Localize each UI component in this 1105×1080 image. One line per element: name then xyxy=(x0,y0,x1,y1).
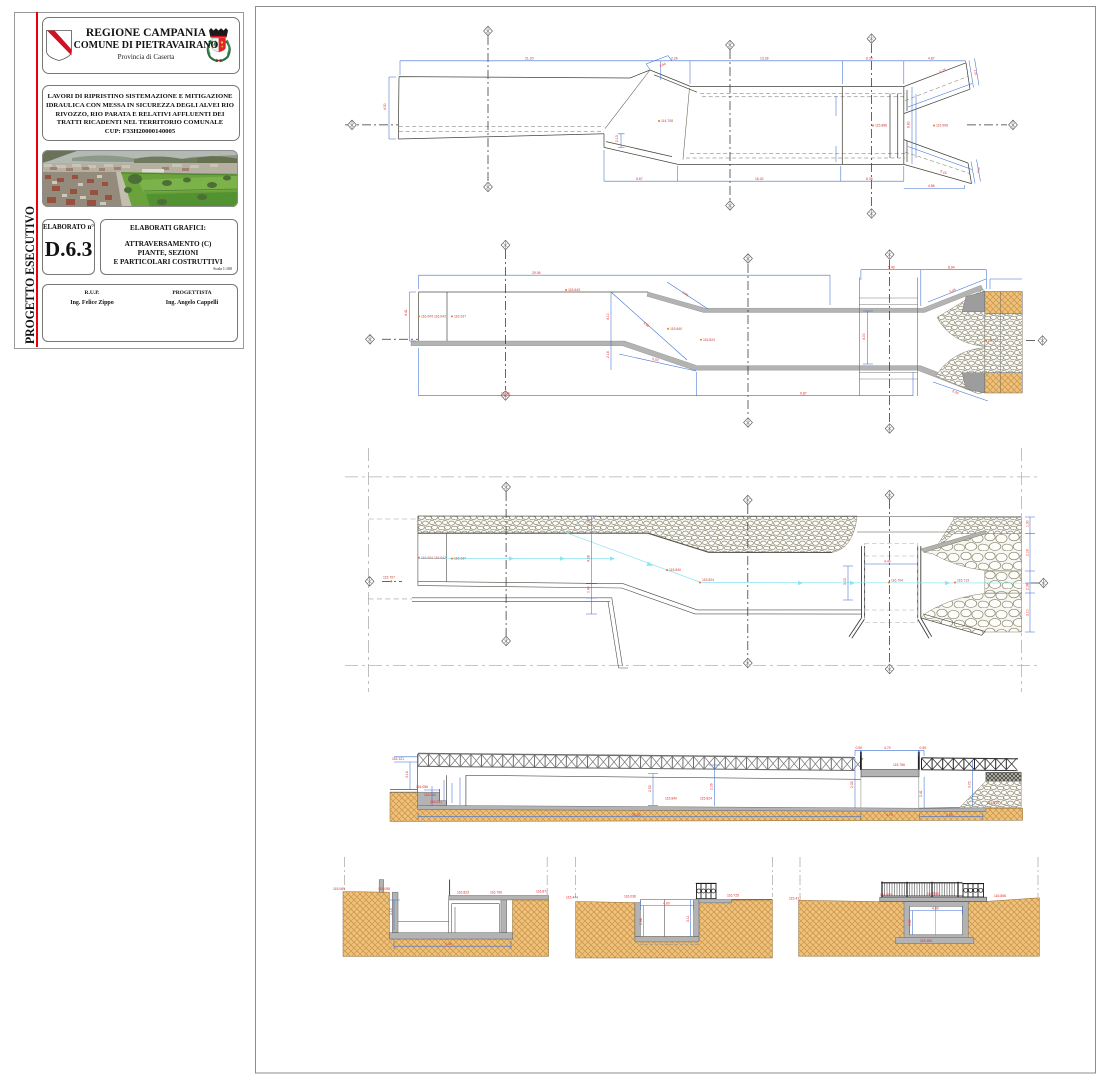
svg-text:4.80: 4.80 xyxy=(932,907,939,911)
svg-text:25.02: 25.02 xyxy=(632,813,641,817)
svg-text:3.01: 3.01 xyxy=(681,290,689,297)
svg-text:4.87: 4.87 xyxy=(928,57,935,61)
svg-text:116.056: 116.056 xyxy=(416,785,428,789)
svg-text:3.11: 3.11 xyxy=(686,916,690,922)
svg-text:115.180: 115.180 xyxy=(920,939,932,943)
svg-text:2.14: 2.14 xyxy=(606,351,610,358)
svg-text:5.34: 5.34 xyxy=(952,389,960,395)
svg-text:115.824: 115.824 xyxy=(703,338,715,342)
svg-text:3.55: 3.55 xyxy=(946,813,953,817)
svg-text:114.708: 114.708 xyxy=(661,119,673,123)
svg-text:115.444: 115.444 xyxy=(566,896,578,900)
svg-text:21.20: 21.20 xyxy=(525,57,534,61)
svg-text:4.70: 4.70 xyxy=(884,746,891,750)
svg-text:5.75: 5.75 xyxy=(939,68,947,74)
svg-text:115.840: 115.840 xyxy=(670,327,682,331)
svg-text:116.872: 116.872 xyxy=(536,890,548,894)
svg-text:115.713: 115.713 xyxy=(957,579,969,583)
svg-text:2.06: 2.06 xyxy=(710,783,714,790)
svg-text:115.840: 115.840 xyxy=(669,568,681,572)
svg-text:4.40: 4.40 xyxy=(445,942,452,946)
svg-text:115.412: 115.412 xyxy=(789,897,801,901)
svg-text:29.06: 29.06 xyxy=(532,271,541,275)
svg-text:1.30: 1.30 xyxy=(587,519,591,526)
svg-text:4.00: 4.00 xyxy=(862,333,866,340)
svg-text:116.823: 116.823 xyxy=(457,891,469,895)
svg-text:6.30: 6.30 xyxy=(866,57,873,61)
svg-text:5.05: 5.05 xyxy=(949,288,957,294)
svg-text:116.725: 116.725 xyxy=(727,894,739,898)
svg-text:115.069: 115.069 xyxy=(333,887,345,891)
svg-text:6.80: 6.80 xyxy=(907,121,911,128)
svg-text:115.707: 115.707 xyxy=(383,576,395,580)
svg-text:4.70: 4.70 xyxy=(886,813,893,817)
svg-text:2.33: 2.33 xyxy=(850,781,854,788)
svg-text:115.824: 115.824 xyxy=(702,578,714,582)
svg-text:4.08: 4.08 xyxy=(587,555,591,562)
svg-text:115.643: 115.643 xyxy=(568,288,580,292)
svg-text:3.64: 3.64 xyxy=(659,62,667,68)
svg-text:4.50: 4.50 xyxy=(383,103,387,110)
svg-text:115.888: 115.888 xyxy=(875,124,887,128)
svg-text:1.30: 1.30 xyxy=(1026,520,1030,527)
svg-text:115.756: 115.756 xyxy=(893,763,905,767)
svg-text:9.87: 9.87 xyxy=(800,391,807,395)
svg-text:115.840: 115.840 xyxy=(665,797,677,801)
svg-text:4.10: 4.10 xyxy=(606,313,610,320)
svg-text:116.555: 116.555 xyxy=(880,893,892,897)
svg-text:4.50: 4.50 xyxy=(642,321,650,328)
svg-text:116.706: 116.706 xyxy=(490,891,502,895)
svg-text:115.098: 115.098 xyxy=(378,887,390,891)
svg-text:4.86: 4.86 xyxy=(928,184,935,188)
svg-text:116.042: 116.042 xyxy=(424,793,436,797)
svg-text:116.036: 116.036 xyxy=(624,895,636,899)
svg-text:2.38: 2.38 xyxy=(1026,583,1030,590)
svg-text:116.004 116.042: 116.004 116.042 xyxy=(421,556,446,560)
svg-text:4.41: 4.41 xyxy=(404,309,408,316)
svg-text:115.908: 115.908 xyxy=(936,124,948,128)
svg-text:2.26: 2.26 xyxy=(671,57,678,61)
svg-text:116.037: 116.037 xyxy=(430,800,442,804)
svg-text:116.004 116.042: 116.004 116.042 xyxy=(421,314,446,318)
svg-text:5.67: 5.67 xyxy=(636,177,643,181)
svg-text:4.00: 4.00 xyxy=(663,901,670,905)
svg-text:3.10: 3.10 xyxy=(1026,609,1030,616)
svg-text:2.09: 2.09 xyxy=(1026,549,1030,556)
svg-text:3.14: 3.14 xyxy=(405,771,409,778)
svg-text:115.824: 115.824 xyxy=(700,797,712,801)
svg-text:8.94: 8.94 xyxy=(948,265,955,269)
svg-text:16.42: 16.42 xyxy=(755,177,764,181)
svg-text:116.856: 116.856 xyxy=(994,894,1006,898)
svg-text:6.36: 6.36 xyxy=(866,177,873,181)
svg-text:116.037: 116.037 xyxy=(454,314,466,318)
svg-text:0.50: 0.50 xyxy=(976,167,981,173)
svg-text:116.704: 116.704 xyxy=(891,579,903,583)
svg-text:2.98: 2.98 xyxy=(639,918,643,925)
svg-text:4.40: 4.40 xyxy=(884,560,891,564)
svg-text:2.14: 2.14 xyxy=(389,908,393,915)
svg-text:13.28: 13.28 xyxy=(760,57,769,61)
svg-text:15.08: 15.08 xyxy=(501,391,510,395)
svg-text:5.40: 5.40 xyxy=(888,265,895,269)
svg-text:3.72: 3.72 xyxy=(968,781,972,788)
svg-text:2.13: 2.13 xyxy=(615,135,619,142)
svg-text:2.41: 2.41 xyxy=(919,790,923,797)
svg-text:115.121: 115.121 xyxy=(392,757,404,761)
svg-text:5.16: 5.16 xyxy=(940,169,948,175)
svg-text:116.037: 116.037 xyxy=(454,557,466,561)
svg-text:2.53: 2.53 xyxy=(648,785,652,792)
svg-text:3.03: 3.03 xyxy=(843,578,847,585)
svg-text:1.50: 1.50 xyxy=(908,919,912,926)
svg-text:0.50: 0.50 xyxy=(856,746,863,750)
svg-text:115.713: 115.713 xyxy=(988,339,998,343)
svg-text:0.40: 0.40 xyxy=(587,586,591,593)
svg-text:116.780: 116.780 xyxy=(927,892,939,896)
svg-text:0.50: 0.50 xyxy=(920,746,927,750)
svg-text:115.715: 115.715 xyxy=(987,801,999,805)
